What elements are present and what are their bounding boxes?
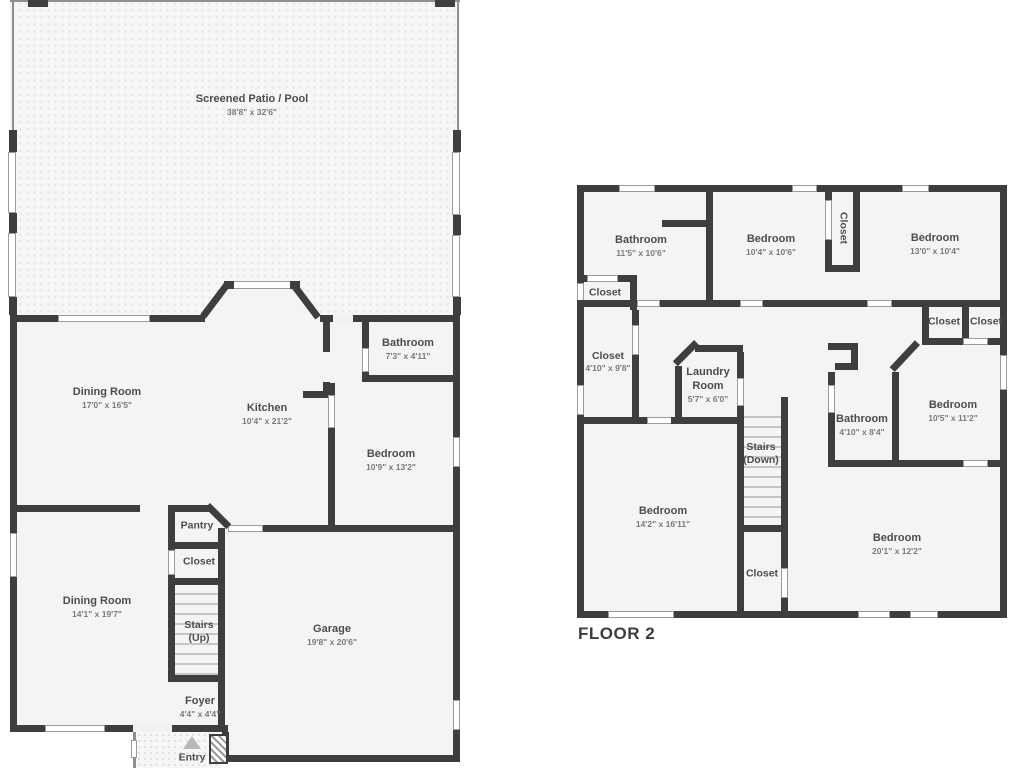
wall <box>175 578 218 585</box>
door-leaf <box>328 395 335 428</box>
room-name: Bedroom <box>873 532 921 544</box>
wall <box>892 300 1007 307</box>
wall <box>168 512 175 550</box>
wall <box>577 185 584 283</box>
room-name: Foyer <box>185 695 215 707</box>
wall <box>851 350 858 370</box>
room-label-bedroom5: Bedroom 20'1" x 12'2" <box>872 532 922 556</box>
window <box>228 281 296 289</box>
window <box>910 611 938 618</box>
floor2-title: FLOOR 2 <box>578 624 655 644</box>
window <box>577 385 584 415</box>
wall <box>9 130 17 152</box>
room-label-bedroom2: Bedroom 13'0" x 10'4" <box>910 232 960 256</box>
door-leaf <box>963 460 988 467</box>
wall <box>938 611 1007 618</box>
window <box>619 185 655 192</box>
window <box>858 611 890 618</box>
wall <box>675 366 682 420</box>
door-leaf <box>867 300 892 307</box>
window <box>58 315 150 322</box>
wall <box>435 0 455 7</box>
wall <box>10 315 17 533</box>
wall <box>453 467 460 700</box>
door-leaf <box>637 300 660 307</box>
window <box>452 152 460 215</box>
room-name-2: (Up) <box>184 632 213 645</box>
window <box>452 235 460 297</box>
room-name: Bedroom <box>929 399 977 411</box>
wall <box>1000 185 1007 355</box>
room-name: Stairs <box>184 619 213 631</box>
wall <box>577 303 584 385</box>
door-leaf <box>737 378 744 406</box>
door-opening <box>133 725 172 732</box>
wall <box>892 372 899 467</box>
room-label-dining2: Dining Room 14'1" x 19'7" <box>63 595 131 619</box>
room-label-closet-small: Closet <box>589 286 621 299</box>
wall <box>825 265 860 272</box>
wall <box>362 375 460 382</box>
wall <box>706 192 713 307</box>
wall <box>353 315 460 322</box>
wall <box>222 755 460 762</box>
room-label-stairs-down: Stairs (Down) <box>743 441 779 467</box>
room-label-closet-bottom: Closet <box>746 567 778 580</box>
door-leaf <box>131 740 137 758</box>
wall <box>828 343 858 350</box>
room-dims: 20'1" x 12'2" <box>872 546 922 557</box>
door-leaf <box>963 338 988 345</box>
wall <box>362 322 369 348</box>
room-name: Bedroom <box>367 448 415 460</box>
room-dims: 4'10" x 9'8" <box>585 363 630 374</box>
wall <box>988 460 1007 467</box>
room-label-laundry: Laundry Room 5'7" x 6'0" <box>686 366 729 404</box>
wall <box>781 397 788 528</box>
door-leaf <box>168 550 175 575</box>
window <box>902 185 929 192</box>
wall <box>825 300 867 307</box>
room-label-bedroom1: Bedroom 10'4" x 10'6" <box>746 233 796 257</box>
door-leaf <box>647 417 673 424</box>
room-name: Closet <box>928 315 960 327</box>
room-dims: 10'5" x 11'2" <box>928 413 977 424</box>
room-dims: 38'8" x 32'6" <box>196 107 308 118</box>
wall <box>28 0 48 7</box>
room-dims: 7'3" x 4'11" <box>382 351 434 362</box>
wall <box>695 345 743 352</box>
room-name: Bathroom <box>836 413 888 425</box>
room-name: Pantry <box>181 519 214 531</box>
window <box>587 275 618 282</box>
wall <box>320 315 333 322</box>
wall <box>828 460 963 467</box>
room-name: Bathroom <box>615 234 667 246</box>
room-label-bathroom: Bathroom 7'3" x 4'11" <box>382 337 434 361</box>
window <box>608 611 674 618</box>
room-label-dining1: Dining Room 17'0" x 16'5" <box>73 386 141 410</box>
room-label-garage: Garage 19'8" x 20'6" <box>307 623 357 647</box>
wall <box>675 417 743 424</box>
room-dims: 10'4" x 10'6" <box>746 247 796 258</box>
room-label-closet-r1: Closet <box>928 315 960 328</box>
room-dims: 19'8" x 20'6" <box>307 637 357 648</box>
wall <box>453 215 461 235</box>
wall <box>453 130 461 152</box>
room-name-2: Room <box>686 380 729 394</box>
wall <box>224 281 234 289</box>
room-label-closet-410: Closet 4'10" x 9'8" <box>585 350 630 374</box>
room-name: Entry <box>179 751 206 763</box>
room-name: Closet <box>838 212 850 244</box>
wall <box>10 315 58 322</box>
wall <box>577 300 637 307</box>
room-label-closet-r2: Closet <box>970 315 1002 328</box>
room-dims: 14'2" x 16'11" <box>636 519 690 530</box>
wall <box>671 417 677 424</box>
room-label-pantry: Pantry <box>181 519 214 532</box>
wall <box>328 428 335 532</box>
wall <box>168 575 175 682</box>
room-name: Closet <box>183 555 215 567</box>
wall <box>9 297 17 315</box>
room-label-bedroom4: Bedroom 14'2" x 16'11" <box>636 505 690 529</box>
room-dims: 17'0" x 16'5" <box>73 400 141 411</box>
room-name: Stairs <box>746 441 775 453</box>
room-name: Screened Patio / Pool <box>196 93 308 105</box>
wall <box>10 505 140 512</box>
room-dims: 4'4" x 4'4" <box>180 709 220 720</box>
room-name: Kitchen <box>247 402 287 414</box>
room-name: Garage <box>313 623 351 635</box>
door-leaf <box>632 325 639 355</box>
room-label-bathroom1: Bathroom 11'5" x 10'6" <box>615 234 667 258</box>
room-name: Bedroom <box>911 232 959 244</box>
door-leaf <box>781 568 788 598</box>
wall <box>323 322 330 352</box>
door-leaf <box>362 348 369 372</box>
room-dims: 11'5" x 10'6" <box>615 248 667 259</box>
wall <box>737 525 788 532</box>
window <box>45 725 105 732</box>
room-label-stairs-up: Stairs (Up) <box>184 619 213 645</box>
room-label-bathroom2: Bathroom 4'10" x 8'4" <box>836 413 888 437</box>
door-leaf <box>825 200 832 240</box>
room-name: Closet <box>592 350 624 362</box>
wall <box>662 220 713 227</box>
wall <box>674 611 858 618</box>
wall <box>890 611 910 618</box>
wall <box>150 315 205 322</box>
wall <box>168 675 225 682</box>
room-name: Dining Room <box>63 595 131 607</box>
wall <box>817 185 902 192</box>
door-leaf <box>740 300 763 307</box>
room-name: Closet <box>589 286 621 298</box>
patio-floor <box>10 0 460 315</box>
wall <box>105 725 133 732</box>
room-dims: 10'9" x 13'2" <box>366 462 416 473</box>
wall <box>655 185 792 192</box>
room-name-2: (Down) <box>743 454 779 467</box>
entry-door-hatch <box>209 734 228 764</box>
wall <box>577 415 584 618</box>
wall <box>10 577 17 732</box>
room-label-closet-vertical: Closet <box>836 212 849 244</box>
window <box>792 185 817 192</box>
wall <box>10 725 45 732</box>
window <box>8 233 16 297</box>
wall <box>1000 390 1007 618</box>
room-name: Dining Room <box>73 386 141 398</box>
floorplan-canvas: Screened Patio / Pool 38'8" x 32'6" Dini… <box>0 0 1024 768</box>
room-name: Closet <box>970 315 1002 327</box>
wall <box>763 300 828 307</box>
window <box>1000 355 1007 390</box>
window <box>8 152 16 213</box>
room-label-kitchen: Kitchen 10'4" x 21'2" <box>242 402 292 426</box>
wall <box>290 281 300 289</box>
door-opening <box>333 315 353 322</box>
wall <box>10 0 460 2</box>
room-label-bedroom: Bedroom 10'9" x 13'2" <box>366 448 416 472</box>
wall <box>923 338 963 345</box>
wall <box>9 213 17 233</box>
wall <box>988 338 1002 345</box>
room-dims: 4'10" x 8'4" <box>836 427 888 438</box>
room-label-bedroom3: Bedroom 10'5" x 11'2" <box>928 399 977 423</box>
wall <box>175 542 218 549</box>
room-name: Bedroom <box>639 505 687 517</box>
room-dims: 13'0" x 10'4" <box>910 246 960 257</box>
wall <box>853 192 860 272</box>
wall <box>453 297 461 315</box>
window <box>10 533 17 577</box>
room-label-foyer: Foyer 4'4" x 4'4" <box>180 695 220 719</box>
room-dims: 14'1" x 19'7" <box>63 609 131 620</box>
room-dims: 10'4" x 21'2" <box>242 416 292 427</box>
room-name: Bathroom <box>382 337 434 349</box>
room-name: Bedroom <box>747 233 795 245</box>
room-dims: 5'7" x 6'0" <box>686 393 729 404</box>
wall <box>660 300 740 307</box>
window <box>453 437 460 467</box>
room-name: Laundry <box>686 366 729 378</box>
wall <box>263 525 460 532</box>
room-name: Closet <box>746 567 778 579</box>
entry-arrow-icon <box>183 736 201 749</box>
room-label-closet: Closet <box>183 555 215 568</box>
wall <box>328 383 335 395</box>
room-label-patio: Screened Patio / Pool 38'8" x 32'6" <box>196 93 308 117</box>
window <box>453 700 460 730</box>
wall <box>835 363 851 370</box>
wall <box>929 185 1007 192</box>
door-leaf <box>228 525 263 532</box>
door-leaf <box>828 385 835 413</box>
room-label-entry: Entry <box>179 751 206 764</box>
